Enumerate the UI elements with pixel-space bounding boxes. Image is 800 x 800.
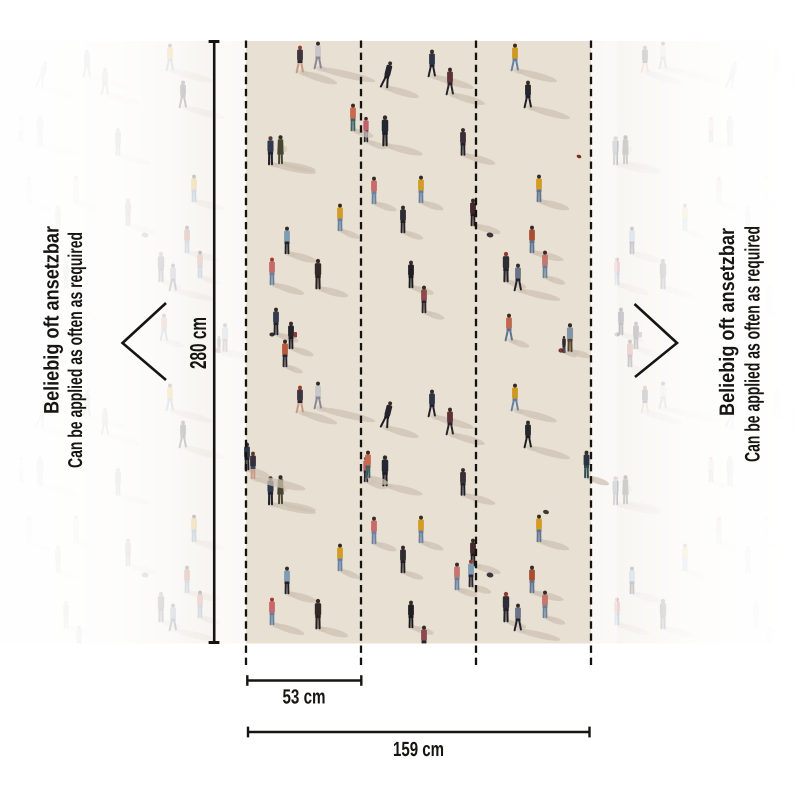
svg-text:159 cm: 159 cm xyxy=(393,738,444,761)
svg-text:Beliebig oft ansetzbar: Beliebig oft ansetzbar xyxy=(716,228,739,416)
svg-text:Can be applied as often as req: Can be applied as often as required xyxy=(742,226,765,462)
svg-text:280 cm: 280 cm xyxy=(185,317,211,369)
svg-text:Beliebig oft ansetzbar: Beliebig oft ansetzbar xyxy=(41,226,64,414)
svg-text:53 cm: 53 cm xyxy=(283,686,326,709)
svg-text:Can be applied as often as req: Can be applied as often as required xyxy=(65,232,87,468)
